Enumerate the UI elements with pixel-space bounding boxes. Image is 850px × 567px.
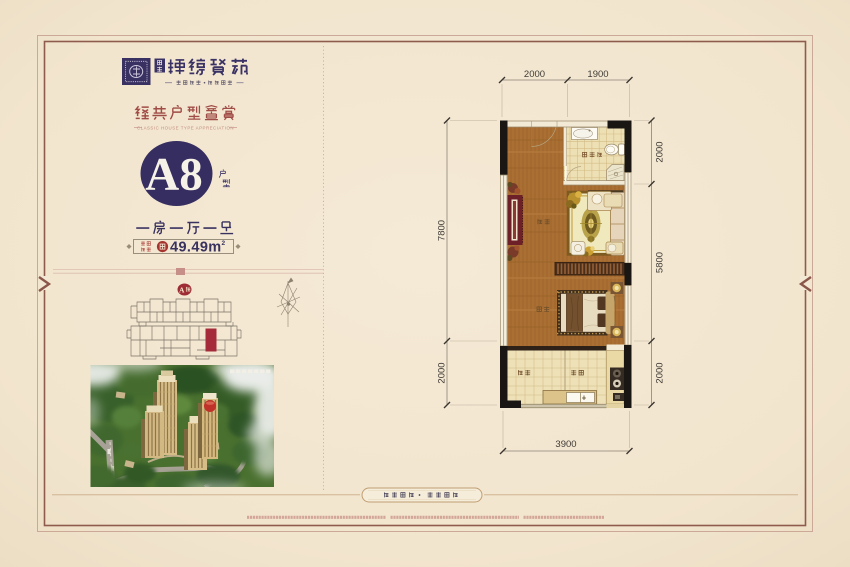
svg-text:2000: 2000: [655, 141, 666, 162]
svg-text:A8: A8: [145, 149, 202, 201]
svg-text:5800: 5800: [655, 252, 666, 273]
svg-text:3900: 3900: [555, 439, 576, 450]
svg-text:CLASSIC HOUSE TYPE APPRECIATIO: CLASSIC HOUSE TYPE APPRECIATION: [137, 125, 234, 130]
svg-text:7800: 7800: [437, 220, 448, 241]
svg-text:1900: 1900: [587, 69, 608, 80]
svg-text:2: 2: [222, 240, 226, 247]
svg-text:A: A: [179, 285, 185, 294]
svg-text:2000: 2000: [655, 362, 666, 383]
svg-text:2000: 2000: [524, 69, 545, 80]
svg-text:2000: 2000: [437, 362, 448, 383]
svg-text:49.49m: 49.49m: [170, 240, 222, 256]
